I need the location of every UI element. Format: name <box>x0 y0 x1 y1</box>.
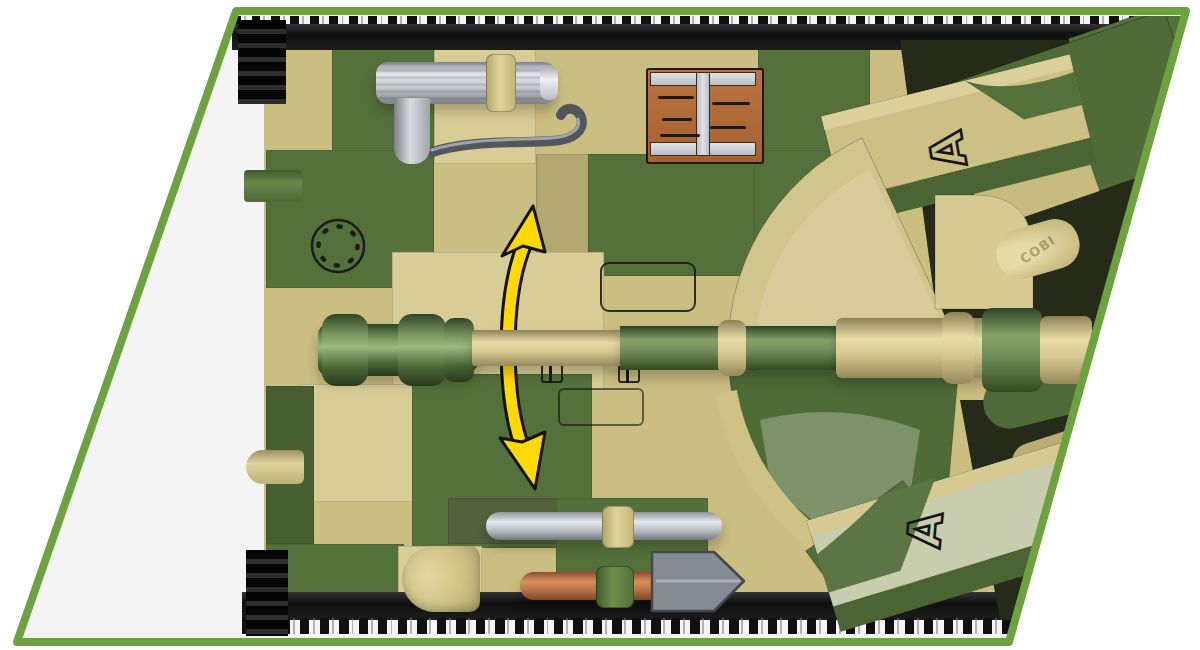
product-photo-tank-top-view: A A COBI <box>0 0 1200 650</box>
framed-scene: A A COBI <box>0 0 1200 650</box>
shovel-blade <box>0 0 1200 650</box>
